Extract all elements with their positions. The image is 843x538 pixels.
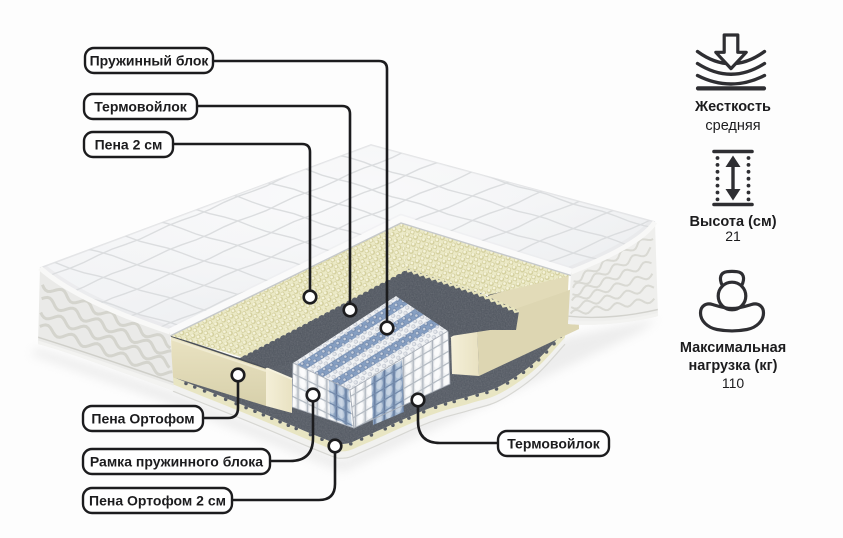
svg-text:110: 110 xyxy=(722,375,745,391)
svg-text:Пена 2 см: Пена 2 см xyxy=(95,136,163,152)
svg-text:Термовойлок: Термовойлок xyxy=(507,435,601,451)
svg-text:Жесткость: Жесткость xyxy=(694,99,771,115)
svg-text:Пена Ортофом 2 см: Пена Ортофом 2 см xyxy=(89,492,226,508)
svg-text:средняя: средняя xyxy=(705,118,760,134)
svg-text:Максимальная: Максимальная xyxy=(680,340,786,356)
svg-text:Пена Ортофом: Пена Ортофом xyxy=(91,410,194,426)
svg-text:21: 21 xyxy=(725,228,741,244)
svg-text:Рамка пружинного блока: Рамка пружинного блока xyxy=(90,453,263,469)
svg-text:Пружинный блок: Пружинный блок xyxy=(90,52,210,68)
svg-text:Термовойлок: Термовойлок xyxy=(94,98,188,114)
svg-text:нагрузка (кг): нагрузка (кг) xyxy=(689,358,778,374)
